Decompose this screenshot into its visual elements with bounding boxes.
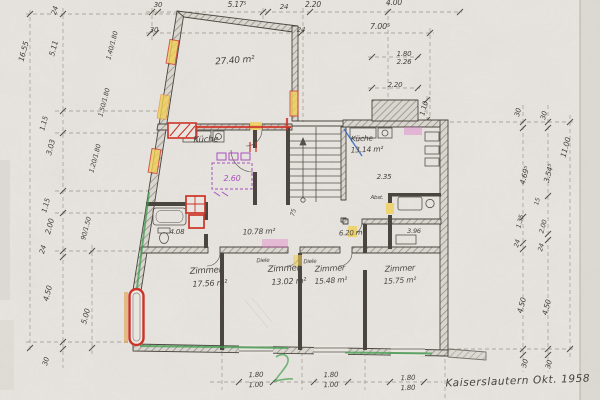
zimmer3-name: Zimmer <box>313 263 346 274</box>
dim-top2-0: 30 <box>150 26 159 34</box>
abstell-label: Abst. <box>369 195 383 201</box>
red-fixture <box>189 215 204 228</box>
zimmer4-area: 15.75 m² <box>383 275 416 286</box>
door-highlight <box>386 203 394 214</box>
pink-highlight <box>404 127 422 135</box>
dim-top1-1: 5.17⁵ <box>228 0 247 9</box>
dim-bottom-0b: 1.00 <box>248 381 264 390</box>
pink-highlight <box>262 239 288 248</box>
diele-area: 10.78 m² <box>242 226 275 236</box>
dim-top1-2: 24 <box>280 3 289 11</box>
scanned-floor-plan-page: 27.40 m² Küche 2.60 4.08 10.78 m² Küche … <box>0 0 600 400</box>
dim-bottom-2a: 1.80 <box>400 374 416 383</box>
dim-top1-0: 30 <box>154 1 163 9</box>
zimmer2-name: Zimmer <box>267 263 301 275</box>
dim-bottom-1b: 1.00 <box>323 381 339 390</box>
red-fixture <box>186 196 205 213</box>
corridor-area: 6.20 m² <box>339 229 366 238</box>
bay-window-red <box>130 289 144 345</box>
kueche-right-dim: 2.35 <box>377 173 393 181</box>
dim-top1-3: 2.20 <box>305 0 321 9</box>
dim-top2-2: 7.00⁵ <box>370 22 390 31</box>
orange-mark <box>124 292 128 343</box>
bad-dim: 4.08 <box>170 228 186 236</box>
wc-dim: 3.96 <box>407 227 421 235</box>
dim-bottom-0a: 1.80 <box>248 371 264 380</box>
kueche-right-area: 13.14 m² <box>350 144 383 154</box>
kueche-sketch-dim: 2.60 <box>223 174 240 183</box>
zimmer2-area: 13.02 m² <box>271 276 307 287</box>
dim-topright-2: 2.20 <box>388 81 404 89</box>
dim-bottom-2b: 1.80 <box>400 384 416 393</box>
zimmer1-area: 17.56 m² <box>192 278 228 289</box>
green-wall-trace <box>345 353 432 354</box>
dim-top2-1: 24 <box>297 26 306 34</box>
door-note-1: Diele <box>256 258 270 265</box>
door-note-2: Diele <box>303 259 317 266</box>
room-kueche-left: Küche <box>193 135 218 146</box>
zimmer1-name: Zimmer <box>189 265 223 277</box>
floor-plan-svg: 27.40 m² Küche 2.60 4.08 10.78 m² Küche … <box>0 0 600 400</box>
window-highlight <box>290 91 298 116</box>
dim-topright-1: 2.26 <box>397 58 413 66</box>
dim-top1-4: 4.00 <box>386 0 402 7</box>
zimmer4-name: Zimmer <box>383 263 416 274</box>
zimmer3-area: 15.48 m² <box>314 275 347 286</box>
dim-bottom-1a: 1.80 <box>323 371 339 380</box>
dim-topright-0: 1.80 <box>397 50 413 58</box>
room-kueche-right: Küche <box>351 134 374 144</box>
